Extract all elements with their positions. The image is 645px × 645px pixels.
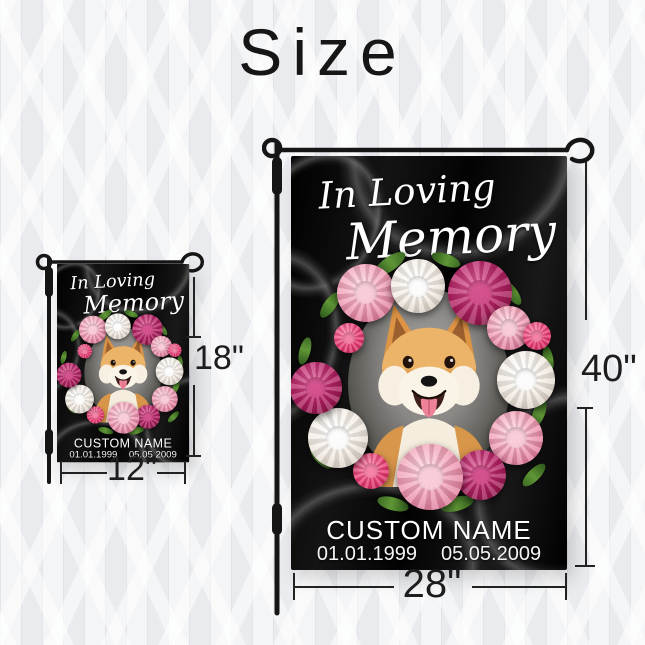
dimension-tick: [184, 461, 186, 484]
hot-pink-flower: [78, 344, 92, 358]
white-peony-flower: [65, 384, 94, 413]
memorial-flag-large: In Loving Memory: [291, 156, 567, 570]
dimension-tick: [186, 455, 201, 457]
height-label-small: 18": [194, 339, 244, 378]
magenta-peony-flower: [57, 363, 81, 388]
custom-name-text: CUSTOM NAME: [291, 515, 567, 546]
memorial-flag-artwork: In Loving Memory: [57, 264, 189, 462]
page-title: Size: [0, 14, 645, 90]
dimension-line: [157, 472, 185, 474]
size-comparison-diagram: Size In Loving Memory: [0, 0, 645, 645]
dimension-tick: [575, 565, 595, 567]
dimension-line: [472, 586, 567, 588]
white-peony-flower: [155, 357, 183, 385]
pink-peony-flower: [397, 444, 463, 510]
hot-pink-flower: [334, 323, 364, 353]
dimension-line: [193, 385, 195, 457]
white-peony-flower: [391, 259, 445, 313]
memorial-flag-artwork: In Loving Memory: [291, 156, 567, 570]
dimension-line: [585, 162, 587, 320]
width-label-large: 28": [390, 562, 474, 607]
pink-peony-flower: [108, 402, 140, 434]
dimension-line: [61, 472, 107, 474]
memorial-flag-small: In Loving Memory: [57, 264, 190, 462]
magenta-peony-flower: [456, 450, 506, 500]
dimension-tick: [186, 336, 201, 338]
pink-peony-flower: [79, 316, 107, 344]
white-peony-flower: [497, 351, 555, 409]
white-peony-flower: [105, 314, 131, 340]
magenta-peony-flower: [136, 405, 160, 429]
hot-pink-flower: [523, 322, 551, 350]
dimension-line: [193, 277, 195, 337]
width-label-small: 12": [106, 450, 158, 489]
dimension-line: [585, 408, 587, 567]
hot-pink-flower: [168, 344, 181, 357]
height-label-large: 40": [581, 348, 637, 391]
pink-peony-flower: [337, 264, 395, 322]
magenta-peony-flower: [291, 362, 342, 414]
dimension-tick: [565, 573, 567, 600]
dimension-line: [294, 586, 394, 588]
white-peony-flower: [308, 408, 368, 468]
